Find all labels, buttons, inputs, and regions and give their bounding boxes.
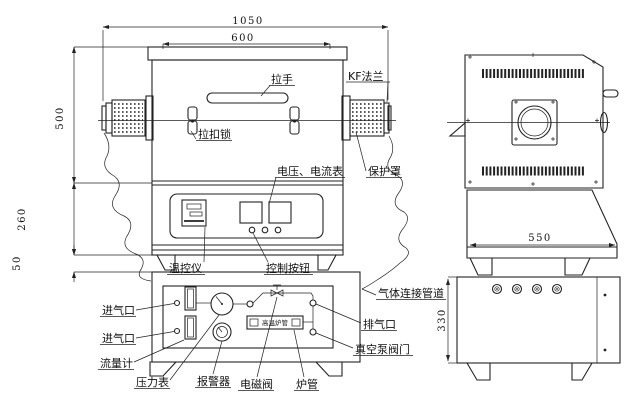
front-dimensions: 1050 600 500 260 50 bbox=[12, 16, 388, 282]
dim-furnace-height: 500 bbox=[55, 106, 66, 130]
furnace-tube-box: 高温炉管 bbox=[247, 316, 303, 329]
vacuum-valve-circle bbox=[310, 329, 316, 335]
front-view: 高温炉管 1050 600 500 260 bbox=[12, 16, 446, 391]
label-solenoid-valve: 电磁阀 bbox=[240, 377, 273, 391]
side-handle bbox=[603, 90, 618, 97]
dim-total-width: 1050 bbox=[232, 16, 263, 27]
alarm-icon bbox=[213, 323, 231, 341]
control-button bbox=[249, 227, 255, 233]
left-kf-flange bbox=[106, 103, 112, 133]
label-flow-meter: 流量计 bbox=[100, 356, 133, 370]
left-flange-assembly bbox=[102, 96, 153, 140]
side-cabinet: 330 bbox=[437, 277, 620, 380]
label-vacuum-pump-valve: 真空泵阀门 bbox=[355, 342, 410, 356]
label-volt-ammeter: 电压、电流表 bbox=[277, 164, 343, 178]
label-protective-cover: 保护罩 bbox=[368, 164, 401, 178]
side-view: 550 330 bbox=[437, 53, 620, 380]
label-alarm: 报警器 bbox=[197, 374, 230, 388]
front-labels: 拉手 KF法兰 拉扣锁 保护罩 电压、电流表 温控仪 控制按钮 进气口 bbox=[98, 69, 446, 391]
ammeter bbox=[269, 202, 291, 223]
gas-inlet-port-top bbox=[175, 301, 180, 306]
tube-box-label: 高温炉管 bbox=[262, 318, 289, 327]
label-kf-flange: KF法兰 bbox=[348, 69, 384, 83]
right-flange-assembly bbox=[342, 96, 391, 140]
solenoid-valve-icon bbox=[271, 285, 283, 296]
gas-inlet-port-bottom bbox=[175, 329, 180, 334]
flow-meters bbox=[175, 287, 197, 339]
right-protective-cover bbox=[350, 100, 384, 136]
dim-body-depth: 550 bbox=[528, 233, 552, 244]
left-bracket bbox=[450, 123, 465, 136]
control-button bbox=[275, 227, 281, 233]
technical-drawing-page: 高温炉管 1050 600 500 260 bbox=[0, 0, 632, 410]
solenoid-valve-port bbox=[247, 301, 253, 307]
control-button bbox=[262, 227, 268, 233]
label-gas-inlet-top: 进气口 bbox=[102, 303, 135, 317]
label-temp-controller: 温控仪 bbox=[169, 261, 202, 275]
dim-control-height: 260 bbox=[17, 207, 28, 231]
voltmeter bbox=[240, 202, 262, 223]
label-gas-inlet-bottom: 进气口 bbox=[102, 331, 135, 345]
label-control-buttons: 控制按钮 bbox=[266, 261, 310, 275]
side-base: 550 bbox=[467, 190, 617, 275]
furnace-drawing-canvas: 高温炉管 1050 600 500 260 bbox=[0, 0, 632, 410]
handle-slot bbox=[207, 93, 288, 103]
cabinet-knobs bbox=[493, 285, 562, 294]
dim-base-height: 50 bbox=[12, 255, 23, 271]
left-protective-cover bbox=[112, 100, 145, 136]
label-pressure-gauge: 压力表 bbox=[136, 375, 169, 389]
label-furnace-tube: 炉管 bbox=[296, 377, 318, 391]
side-body bbox=[447, 53, 618, 188]
gas-cabinet: 高温炉管 bbox=[150, 272, 360, 376]
pressure-gauge-icon bbox=[211, 293, 233, 315]
label-gas-connection-pipe: 气体连接管道 bbox=[378, 286, 444, 300]
dim-lid-width: 600 bbox=[231, 33, 255, 44]
flexible-gas-pipes bbox=[104, 133, 408, 289]
exhaust-port-circle bbox=[310, 300, 316, 306]
control-panel bbox=[170, 194, 323, 238]
label-handle: 拉手 bbox=[271, 72, 293, 86]
label-latch-lock: 拉扣锁 bbox=[198, 127, 231, 141]
label-exhaust-port: 排气口 bbox=[363, 317, 396, 331]
dim-cabinet-height: 330 bbox=[437, 308, 448, 332]
